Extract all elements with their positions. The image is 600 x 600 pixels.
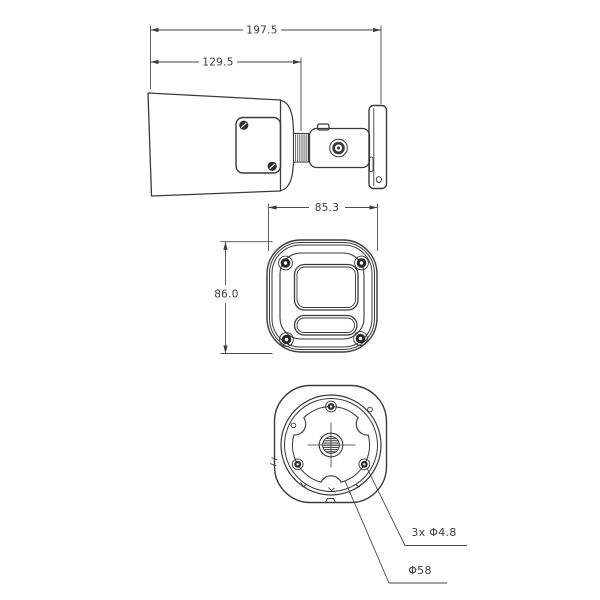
front-face-plate	[280, 253, 364, 339]
arm-locking-screw	[330, 139, 348, 157]
technical-drawing: 197.5 129.5	[0, 0, 600, 600]
ir-led-window-inner	[297, 318, 355, 333]
drawing-canvas: 197.5 129.5	[0, 0, 600, 600]
camera-body	[148, 93, 281, 196]
dimension-overall-length: 197.5	[151, 25, 382, 104]
mount-circle-label: Φ58	[408, 564, 432, 577]
front-height-label: 86.0	[214, 289, 239, 301]
alignment-hole-right	[368, 407, 373, 412]
lens-window-inner	[297, 267, 356, 308]
front-screw-top-right	[355, 256, 369, 270]
cable-panel-screw-bottom	[268, 162, 277, 171]
overall-length-label: 197.5	[246, 25, 278, 37]
mount-screw-right	[359, 459, 370, 470]
neck-taper-bottom	[281, 162, 294, 191]
mount-screw-left	[292, 459, 303, 470]
front-screw-top-left	[279, 256, 293, 270]
alignment-hole-left	[291, 423, 296, 428]
lens-window	[295, 265, 359, 311]
front-width-label: 85.3	[315, 202, 340, 214]
center-thread-hole	[308, 423, 356, 468]
dimension-front-height: 86.0	[214, 242, 272, 354]
mount-holes-label: 3x Φ4.8	[411, 526, 456, 539]
front-view	[267, 240, 377, 352]
cable-panel-screw-top	[239, 121, 248, 130]
base-plate-hole	[376, 177, 381, 183]
mount-base-plate	[369, 106, 387, 189]
front-screw-bottom-right	[354, 332, 368, 346]
bottom-view	[270, 386, 387, 503]
side-view	[148, 93, 387, 196]
callout-mount-holes: 3x Φ4.8	[367, 468, 467, 546]
body-length-label: 129.5	[202, 57, 234, 69]
thread-ridges	[295, 135, 306, 162]
neck-taper-top	[281, 101, 294, 134]
